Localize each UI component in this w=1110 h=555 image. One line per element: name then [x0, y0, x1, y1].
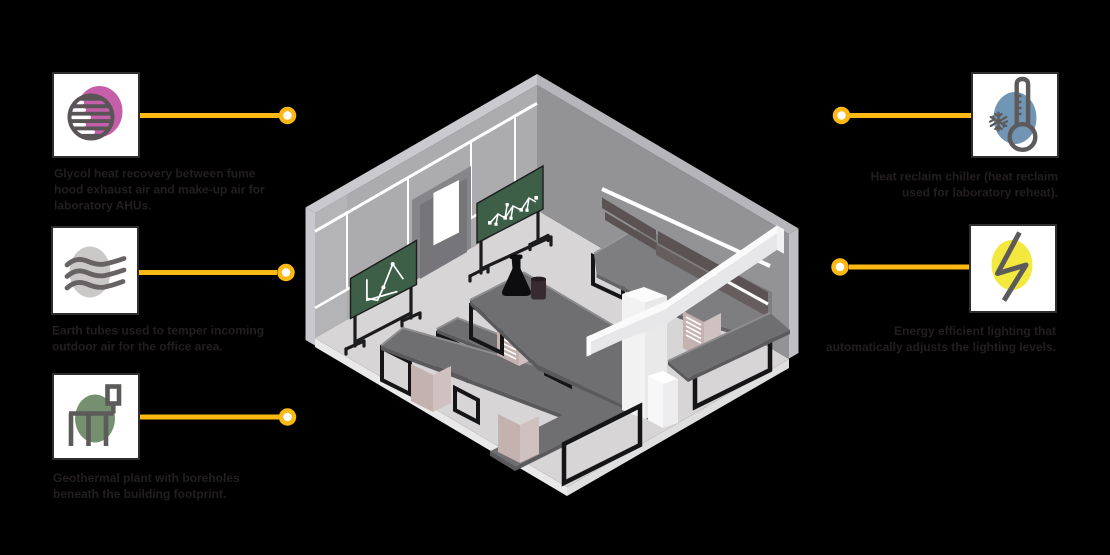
svg-text:laboratory AHUs.: laboratory AHUs.	[54, 199, 152, 213]
svg-text:Geothermal plant with borehole: Geothermal plant with boreholes	[53, 471, 240, 485]
svg-text:automatically adjusts the ligh: automatically adjusts the lighting level…	[826, 340, 1056, 354]
svg-text:outdoor air for the office are: outdoor air for the office area.	[52, 340, 223, 354]
svg-text:Heat reclaim chiller (heat rec: Heat reclaim chiller (heat reclaim	[871, 170, 1058, 184]
svg-text:Energy efficient lighting that: Energy efficient lighting that	[894, 324, 1056, 338]
svg-text:Glycol heat recovery between f: Glycol heat recovery between fume	[54, 167, 256, 181]
svg-text:beneath the building footprint: beneath the building footprint.	[53, 487, 226, 501]
svg-text:Earth tubes used to temper inc: Earth tubes used to temper incoming	[52, 324, 264, 338]
svg-text:used for laboratory reheat).: used for laboratory reheat).	[902, 186, 1058, 200]
svg-text:hood exhaust air and make-up a: hood exhaust air and make-up air for	[54, 183, 265, 197]
